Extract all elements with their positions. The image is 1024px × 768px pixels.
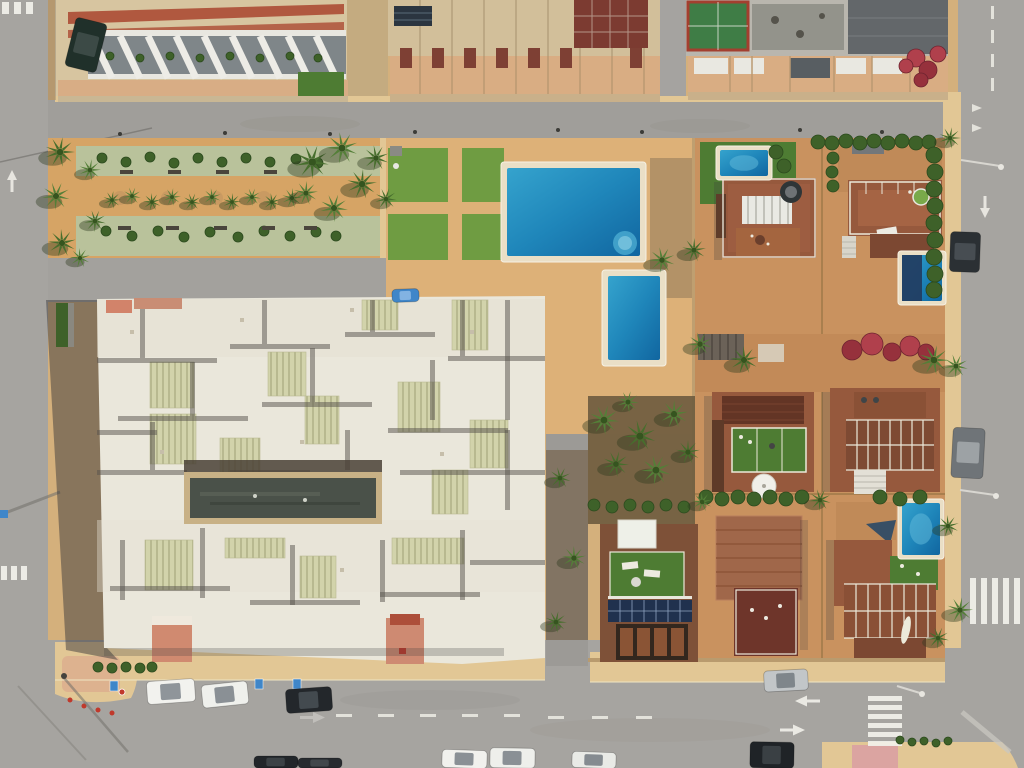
palm-crown xyxy=(210,195,214,199)
bush xyxy=(147,662,157,672)
umbrella-pole xyxy=(762,484,766,488)
terrace-strip xyxy=(390,56,660,98)
bush xyxy=(97,153,107,163)
road-stain xyxy=(240,116,360,132)
bush xyxy=(826,166,838,178)
park-bench xyxy=(168,170,181,174)
roof-seam xyxy=(310,348,315,402)
blue-car-street xyxy=(392,289,419,303)
lawn-path-horizontal xyxy=(388,202,504,214)
park-bench xyxy=(120,170,133,174)
villa-e-lower xyxy=(734,588,798,656)
villa-shadow xyxy=(800,520,808,650)
streetlight xyxy=(880,130,884,134)
palm-crown xyxy=(601,417,608,424)
stair-block xyxy=(528,48,540,68)
lane-dash xyxy=(636,716,652,719)
bush xyxy=(217,157,227,167)
bush xyxy=(896,736,904,744)
roof-seam xyxy=(388,428,508,433)
traffic-island xyxy=(822,742,1018,768)
roof-seam xyxy=(370,300,375,332)
traffic-sign xyxy=(119,689,125,695)
white-car-3 xyxy=(490,748,535,768)
pink-paving-island xyxy=(852,745,898,768)
villa-c-turf-terrace xyxy=(732,428,806,472)
roof-seam xyxy=(118,416,248,421)
palm-crown xyxy=(558,476,563,481)
silver-car xyxy=(763,669,808,692)
chair xyxy=(748,440,752,444)
bush xyxy=(106,52,114,60)
roof-vent xyxy=(470,330,474,334)
roof-seam xyxy=(97,430,157,435)
palm-crown xyxy=(230,200,234,204)
bush xyxy=(233,232,243,242)
dark-car-right-road xyxy=(949,231,980,272)
white-canopy xyxy=(618,520,656,548)
zebra-stripe xyxy=(868,732,902,737)
skylight xyxy=(150,362,194,408)
zebra-stripe xyxy=(26,2,33,14)
zebra-stripe xyxy=(14,2,21,14)
palm-crown xyxy=(957,607,963,613)
car-glass xyxy=(954,243,976,261)
bush xyxy=(205,227,215,237)
skylight xyxy=(392,538,464,564)
bush xyxy=(926,147,942,163)
palm-crown xyxy=(571,555,576,560)
palm-crown xyxy=(685,449,690,454)
palm-crown xyxy=(626,400,631,405)
skylight xyxy=(362,300,398,330)
zebra-stripe xyxy=(1,566,7,580)
bush xyxy=(153,226,163,236)
crosswalk-left-mid xyxy=(1,566,27,580)
atrium-courtyard xyxy=(190,478,376,518)
car-glass xyxy=(399,291,411,300)
villa-d-upper xyxy=(854,392,926,418)
streetlight xyxy=(61,673,67,679)
bush xyxy=(873,490,887,504)
pergola xyxy=(694,58,728,74)
roof-seam xyxy=(505,430,510,510)
zebra-stripe xyxy=(868,705,902,710)
bush xyxy=(136,54,144,62)
bougainvillea-bush xyxy=(861,333,883,355)
roof-seam xyxy=(470,560,545,565)
zebra-stripe xyxy=(868,723,902,728)
palm-crown xyxy=(691,247,696,252)
road-stain xyxy=(650,119,750,133)
red-tile-roof xyxy=(574,0,648,48)
lane-dash xyxy=(991,78,994,91)
bougainvillea-bush xyxy=(914,73,928,87)
roof-seam xyxy=(430,360,435,420)
roof-seam xyxy=(190,362,195,416)
palm-crown xyxy=(88,168,93,173)
bougainvillea-bush xyxy=(883,343,901,361)
bush xyxy=(731,490,745,504)
dark-car-bottom-3 xyxy=(750,742,794,768)
building-shadow-south xyxy=(104,648,504,656)
atrium-detail xyxy=(253,494,257,498)
roof-clutter xyxy=(819,13,825,19)
lane-dash xyxy=(592,716,608,719)
palm-crown xyxy=(948,136,953,141)
bush xyxy=(811,135,825,149)
fence xyxy=(68,303,74,347)
skylight xyxy=(268,352,306,396)
terracotta-accent xyxy=(106,300,132,313)
zebra-stripe xyxy=(868,696,902,701)
zebra-stripe xyxy=(21,566,27,580)
stair-block xyxy=(560,48,572,68)
roof-vent xyxy=(240,318,244,322)
chair xyxy=(916,572,920,576)
parking-sign xyxy=(110,681,118,691)
atrium-texture xyxy=(200,492,320,496)
zebra-stripe xyxy=(1014,578,1020,624)
palm-crown xyxy=(741,357,747,363)
dark-car-bottom-1 xyxy=(254,756,298,768)
villa-a xyxy=(714,178,816,260)
lane-dash xyxy=(991,6,994,19)
villa-b xyxy=(838,142,942,258)
chair xyxy=(908,190,912,194)
stair-block xyxy=(464,48,476,68)
atrium-texture xyxy=(210,502,360,505)
bush xyxy=(932,739,940,747)
bush xyxy=(285,231,295,241)
car-glass xyxy=(214,686,235,704)
white-car-1 xyxy=(201,681,249,709)
car-glass xyxy=(310,760,328,767)
white-apartment-complex xyxy=(46,296,545,664)
stair-block xyxy=(400,48,412,68)
bush xyxy=(588,499,600,511)
roof-vent xyxy=(340,568,344,572)
villa-shadow xyxy=(704,396,712,492)
zebra-stripe xyxy=(981,578,987,624)
bush xyxy=(926,249,942,265)
roof-seam xyxy=(380,592,480,597)
aerial-scene xyxy=(0,0,1024,768)
garden-shed xyxy=(758,344,784,362)
roof-seam xyxy=(262,300,267,344)
bush xyxy=(145,152,155,162)
patio-table xyxy=(755,235,765,245)
lower-terrace xyxy=(854,638,926,658)
hedge-strip xyxy=(56,303,68,347)
stairwell-top xyxy=(152,616,192,625)
roof-patio xyxy=(752,4,844,50)
palm-crown xyxy=(359,181,366,188)
car-glass xyxy=(584,754,603,766)
pool-cover xyxy=(902,255,922,301)
bush xyxy=(166,52,174,60)
palm-crown xyxy=(250,195,254,199)
roof-seam xyxy=(110,586,230,591)
chair xyxy=(751,235,754,238)
bush xyxy=(920,737,928,745)
bush xyxy=(927,232,943,248)
ac-unit xyxy=(861,397,867,403)
roof-seam xyxy=(290,545,295,605)
villa-plunge-pool xyxy=(716,146,772,180)
garage-bay xyxy=(620,628,633,656)
skylight xyxy=(145,540,193,590)
bush xyxy=(121,662,131,672)
park-bench xyxy=(118,226,131,230)
bush xyxy=(926,181,942,197)
palm-crown xyxy=(671,411,677,417)
streetlight xyxy=(328,132,332,136)
car-glass xyxy=(160,683,181,700)
bush xyxy=(642,501,654,513)
skylight xyxy=(300,556,336,598)
lane-dash xyxy=(991,54,994,67)
palm-crown xyxy=(170,195,174,199)
terrace-object xyxy=(769,443,775,449)
villa-c xyxy=(704,392,814,498)
palm-crown xyxy=(190,200,194,204)
terrace-wall xyxy=(58,96,348,102)
spa-cover xyxy=(785,186,797,198)
palm-crown xyxy=(636,432,643,439)
panel-edge xyxy=(608,596,692,599)
bollard xyxy=(96,708,101,713)
atrium-detail xyxy=(303,498,307,502)
atrium-shadow xyxy=(184,460,382,474)
ac-unit xyxy=(873,397,879,403)
terrace-table xyxy=(631,577,641,587)
dark-car-bottom-2 xyxy=(298,758,342,768)
terrace-wall-south xyxy=(390,94,660,102)
park-bench xyxy=(304,226,317,230)
roof-vent xyxy=(130,330,134,334)
car-glass xyxy=(454,752,473,765)
palm-crown xyxy=(946,524,951,529)
bush xyxy=(286,52,294,60)
roof-turf xyxy=(298,72,344,96)
skylight xyxy=(452,300,488,350)
skylight xyxy=(432,470,468,514)
bush xyxy=(839,134,853,148)
bush xyxy=(179,232,189,242)
streetlight xyxy=(223,131,227,135)
dark-roof xyxy=(848,0,948,54)
streetlight xyxy=(413,130,417,134)
bush xyxy=(853,136,867,150)
palm-crown xyxy=(384,197,389,202)
garage-bay xyxy=(671,628,684,656)
palm-crown xyxy=(150,200,154,204)
streetlight xyxy=(118,132,122,136)
grey-car-right-road xyxy=(951,427,986,479)
lawn-object xyxy=(393,163,399,169)
solar-villa xyxy=(600,520,698,662)
bush xyxy=(169,158,179,168)
palm-crown xyxy=(270,200,274,204)
chair xyxy=(778,604,782,608)
park-bench xyxy=(264,170,277,174)
awning xyxy=(790,58,830,78)
bush xyxy=(193,153,203,163)
palm-crown xyxy=(110,198,114,202)
roof-vent xyxy=(350,308,354,312)
secondary-pool xyxy=(602,270,666,366)
bush xyxy=(927,164,943,180)
lane-dash xyxy=(504,714,520,717)
roof-seam xyxy=(262,402,372,407)
palm-crown xyxy=(554,620,559,625)
lower-terrace xyxy=(736,228,800,256)
dark-suv xyxy=(285,686,333,713)
bougainvillea-bush xyxy=(899,59,913,73)
bush xyxy=(93,662,103,672)
palm-crown xyxy=(700,500,704,504)
bush xyxy=(779,492,793,506)
chair xyxy=(900,564,904,568)
bush xyxy=(660,499,672,511)
lawn-path-vertical xyxy=(448,148,462,260)
white-car-4 xyxy=(572,751,617,768)
villa-shadow xyxy=(826,540,834,640)
streetlight-head xyxy=(998,164,1004,170)
bush xyxy=(926,215,942,231)
roof-seam xyxy=(448,356,545,361)
car-glass xyxy=(298,691,318,709)
skylight xyxy=(225,538,285,558)
chair xyxy=(750,608,754,612)
pergola xyxy=(872,58,902,74)
roof-seam xyxy=(460,300,465,356)
terrace-wall-south xyxy=(688,92,948,100)
bush xyxy=(944,737,952,745)
roof-seam xyxy=(140,306,145,358)
pool-highlight xyxy=(730,155,759,171)
ramp-roof xyxy=(390,614,420,625)
palm-crown xyxy=(931,357,938,364)
car-glass xyxy=(762,746,781,765)
roof-seam xyxy=(97,470,187,475)
bush xyxy=(226,52,234,60)
roof-seam xyxy=(460,530,465,600)
alley-2 xyxy=(660,0,686,102)
stair-block xyxy=(630,48,642,68)
villa-d xyxy=(822,388,940,494)
palm-crown xyxy=(130,194,134,198)
stair-block xyxy=(432,48,444,68)
skylight xyxy=(470,420,508,468)
chair xyxy=(739,435,743,439)
palm-crown xyxy=(78,256,82,260)
palm-crown xyxy=(818,498,823,503)
roof-vent xyxy=(440,452,444,456)
streetlight xyxy=(798,128,802,132)
palm-crown xyxy=(303,190,308,195)
zebra-stripe xyxy=(992,578,998,624)
bougainvillea-bush xyxy=(900,336,920,356)
alley-1 xyxy=(346,0,388,102)
pool-highlight xyxy=(910,513,933,544)
bush xyxy=(893,492,907,506)
terracotta-accent xyxy=(134,298,182,309)
solar-water-heater xyxy=(394,6,432,26)
palm-crown xyxy=(331,205,337,211)
roof-seam xyxy=(345,332,435,337)
roof-vent xyxy=(160,450,164,454)
bush xyxy=(913,490,927,504)
bush xyxy=(265,157,275,167)
crosswalk-left-top xyxy=(2,2,33,14)
bush xyxy=(107,663,117,673)
pergola xyxy=(734,58,764,74)
bush xyxy=(763,490,777,504)
block-shadow xyxy=(48,0,56,100)
apartment-block-3 xyxy=(686,0,948,100)
roof-seam xyxy=(250,600,360,605)
bush xyxy=(777,159,791,173)
lane-dash xyxy=(420,714,436,717)
pool-steps xyxy=(618,236,632,250)
lane-dash xyxy=(462,714,478,717)
garage-bay xyxy=(637,628,650,656)
shade-pergola xyxy=(698,334,744,360)
palm-crown xyxy=(338,144,345,151)
pergola xyxy=(836,58,866,74)
sun-lounger xyxy=(644,569,661,577)
chair xyxy=(767,243,770,246)
street-top xyxy=(48,100,960,142)
roof-seam xyxy=(97,358,217,363)
bush xyxy=(331,231,341,241)
palm-crown xyxy=(653,467,660,474)
roof-vent xyxy=(300,440,304,444)
zebra-stripe xyxy=(2,2,9,14)
white-car-2 xyxy=(442,749,488,768)
main-community-pool xyxy=(501,162,646,262)
lane-dash xyxy=(548,716,564,719)
zebra-stripe xyxy=(11,566,17,580)
palm-crown xyxy=(93,219,98,224)
lane-dash xyxy=(378,714,394,717)
parking-sign xyxy=(255,679,263,689)
skylight xyxy=(150,414,196,464)
car-glass xyxy=(956,441,979,463)
pool-water xyxy=(608,276,660,360)
bollard xyxy=(68,698,73,703)
bush xyxy=(121,157,131,167)
bush xyxy=(909,136,923,150)
bush xyxy=(256,54,264,62)
streetlight xyxy=(640,130,644,134)
palm-crown xyxy=(373,155,379,161)
palm-crown xyxy=(953,363,958,368)
bush xyxy=(908,738,916,746)
chair xyxy=(764,616,768,620)
bush xyxy=(715,492,729,506)
aerial-photo xyxy=(0,0,1024,768)
garage-bay xyxy=(654,628,667,656)
road-stain xyxy=(530,718,770,742)
bush xyxy=(825,136,839,150)
streetlight xyxy=(556,128,560,132)
path-exit xyxy=(546,640,588,666)
bush xyxy=(135,663,145,673)
stairs xyxy=(842,236,856,258)
